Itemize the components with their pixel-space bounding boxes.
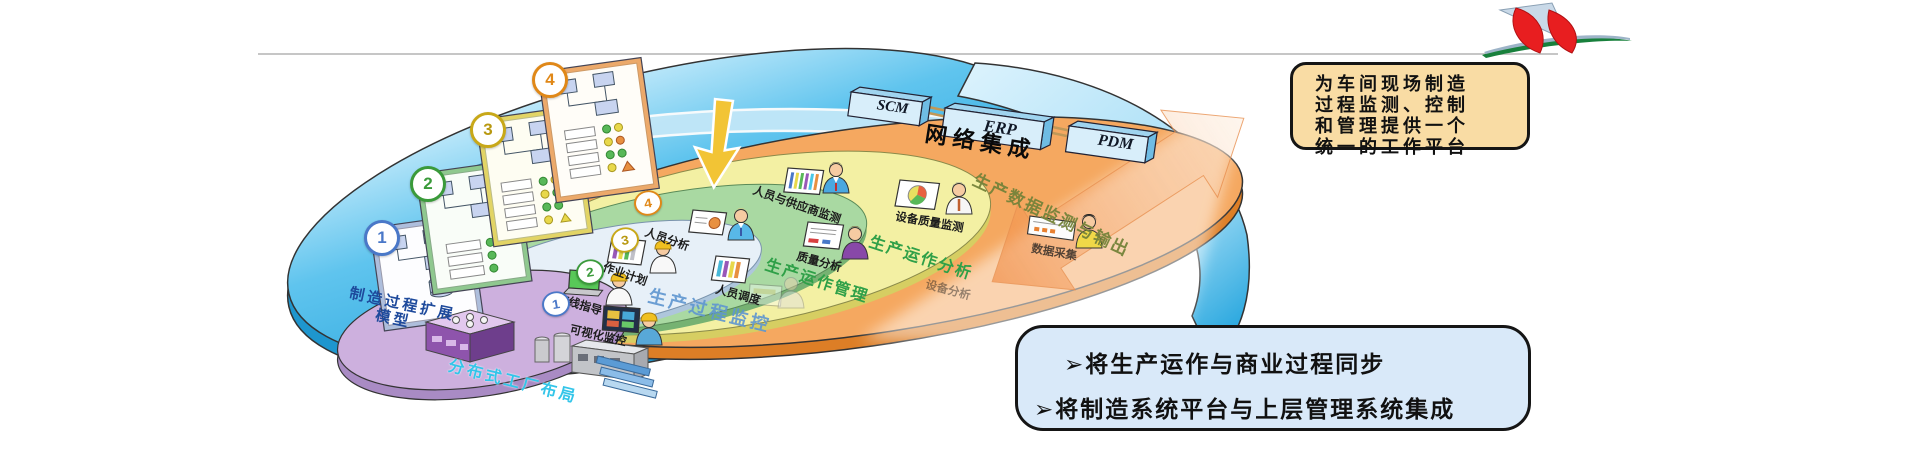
- monitor-bars-supplier: [784, 168, 824, 194]
- platform-callout-line: 为车间现场制造: [1315, 74, 1527, 95]
- goal-item: ➢将生产运作与商业过程同步: [1064, 345, 1528, 379]
- goals-callout: ➢将生产运作与商业过程同步 ➢将制造系统平台与上层管理系统集成: [1015, 325, 1531, 431]
- card-badge-3: 3: [470, 112, 506, 148]
- platform-callout-line: 统一的工作平台: [1315, 137, 1527, 158]
- card-badge-4: 4: [532, 62, 568, 98]
- goal-bullet-icon: ➢: [1064, 351, 1085, 377]
- monitor-bars-dispatch: [711, 256, 749, 283]
- monitor-pie-equipment: [895, 180, 939, 209]
- card-badge-1: 1: [364, 220, 400, 256]
- goal-item: ➢将制造系统平台与上层管理系统集成: [1034, 390, 1528, 424]
- goal-bullet-icon: ➢: [1034, 396, 1055, 422]
- platform-callout: 为车间现场制造 过程监测、控制 和管理提供一个 统一的工作平台: [1290, 62, 1530, 150]
- goal-text: 将生产运作与商业过程同步: [1085, 351, 1385, 377]
- platform-callout-line: 和管理提供一个: [1315, 116, 1527, 137]
- goal-text: 将制造系统平台与上层管理系统集成: [1055, 396, 1455, 422]
- company-logo: [1482, 3, 1632, 58]
- card-badge-2: 2: [410, 166, 446, 202]
- platform-callout-line: 过程监测、控制: [1315, 95, 1527, 116]
- slide-canvas: 网络集成 SCM ERP PDM 制造过程扩展 模型 生产数据监测与输出 人员与…: [0, 0, 1920, 460]
- monitor-person-analysis: [689, 210, 727, 235]
